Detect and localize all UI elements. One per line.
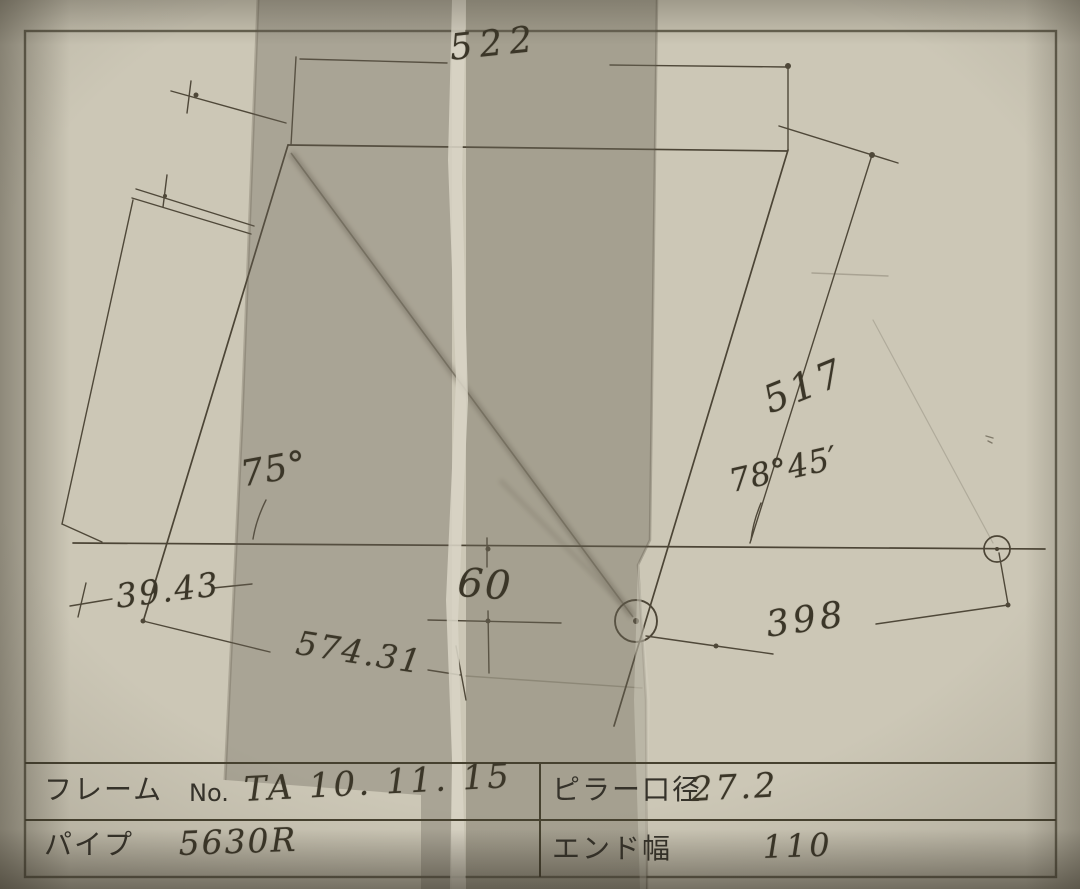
dim-top-tube-label: 522 <box>448 22 541 67</box>
frame-no-label: No. <box>189 781 229 805</box>
frame-drawing-svg <box>0 0 1080 889</box>
dim-bb-drop-label: 60 <box>456 563 514 607</box>
axle-center-dot <box>995 547 999 551</box>
end-width-label: エンド幅 <box>552 835 672 863</box>
tape-bands <box>225 0 657 889</box>
tape-band-right <box>466 0 657 889</box>
pipe-label: パイプ <box>44 831 134 859</box>
frame-label: フレーム <box>44 776 163 804</box>
frame-drawing-photo: 522 517 78°45′ 75° 39.43 60 574.31 398 フ… <box>0 0 1080 889</box>
pillar-diameter-label: ピラー口径 <box>552 776 702 804</box>
pillar-diameter-value: 27.2 <box>690 768 779 807</box>
tape-band-left <box>225 0 452 889</box>
end-width-value: 110 <box>762 829 833 863</box>
pipe-value: 5630R <box>178 823 298 860</box>
